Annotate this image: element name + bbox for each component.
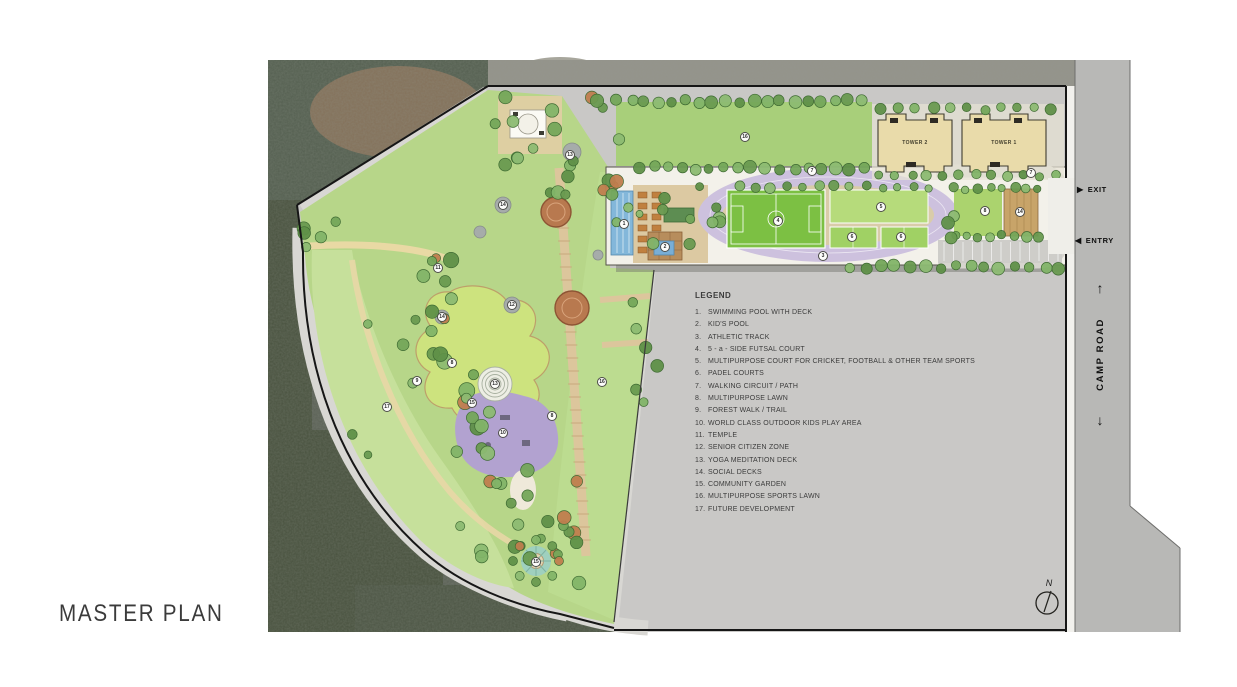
- towers: [872, 104, 1064, 180]
- exit-arrow-icon: ▶: [1077, 186, 1084, 194]
- exit-gate: ▶ EXIT: [1077, 185, 1107, 194]
- legend-item: 16.MULTIPURPOSE SPORTS LAWN: [695, 491, 1025, 503]
- legend: LEGEND 1.SWIMMING POOL WITH DECK2.KID'S …: [695, 291, 1025, 516]
- plan-marker-10: 10: [498, 428, 508, 438]
- legend-item: 6.PADEL COURTS: [695, 368, 1025, 380]
- entry-label: ENTRY: [1086, 236, 1114, 245]
- plan-marker-7: 7: [1026, 168, 1036, 178]
- plan-marker-8: 8: [547, 411, 557, 421]
- legend-item: 2.KID'S POOL: [695, 319, 1025, 331]
- plan-marker-12: 12: [507, 300, 517, 310]
- plan-marker-11: 11: [433, 263, 443, 273]
- plan-marker-17: 17: [382, 402, 392, 412]
- tower-1-label: TOWER 1: [991, 140, 1017, 146]
- camp-road-strip: [1048, 60, 1180, 632]
- legend-item: 8.MULTIPURPOSE LAWN: [695, 393, 1025, 405]
- legend-item: 13.YOGA MEDITATION DECK: [695, 455, 1025, 467]
- plan-marker-6: 6: [896, 232, 906, 242]
- legend-item: 9.FOREST WALK / TRAIL: [695, 405, 1025, 417]
- legend-item: 5.MULTIPURPOSE COURT FOR CRICKET, FOOTBA…: [695, 356, 1025, 368]
- legend-item: 11.TEMPLE: [695, 430, 1025, 442]
- exit-label: EXIT: [1088, 185, 1107, 194]
- arrow-up-icon: ↑: [1097, 281, 1104, 295]
- plan-marker-16: 16: [597, 377, 607, 387]
- entry-gate: ◀ ENTRY: [1075, 236, 1114, 245]
- plan-marker-4: 4: [773, 216, 783, 226]
- plan-marker-8: 8: [447, 358, 457, 368]
- legend-item: 15.COMMUNITY GARDEN: [695, 479, 1025, 491]
- page-title: MASTER PLAN: [59, 600, 224, 628]
- plan-marker-15: 15: [467, 398, 477, 408]
- plan-marker-2: 2: [660, 242, 670, 252]
- arrow-down-icon: ↓: [1097, 413, 1104, 427]
- plan-marker-15: 15: [531, 557, 541, 567]
- legend-item: 12.SENIOR CITIZEN ZONE: [695, 442, 1025, 454]
- road-name: CAMP ROAD: [1095, 318, 1106, 391]
- plan-marker-5: 5: [876, 202, 886, 212]
- plan-marker-6: 6: [847, 232, 857, 242]
- plan-marker-9: 9: [412, 376, 422, 386]
- plan-marker-3: 3: [818, 251, 828, 261]
- plan-marker-7: 7: [807, 166, 817, 176]
- legend-item: 10.WORLD CLASS OUTDOOR KIDS PLAY AREA: [695, 418, 1025, 430]
- plan-marker-8: 8: [980, 206, 990, 216]
- north-label: N: [1046, 578, 1053, 588]
- plan-marker-13: 13: [565, 150, 575, 160]
- tower-2-label: TOWER 2: [902, 140, 928, 146]
- legend-list: 1.SWIMMING POOL WITH DECK2.KID'S POOL3.A…: [695, 307, 1025, 516]
- legend-item: 4.5 - a - SIDE FUTSAL COURT: [695, 344, 1025, 356]
- plan-marker-14: 14: [498, 200, 508, 210]
- legend-item: 17.FUTURE DEVELOPMENT: [695, 504, 1025, 516]
- legend-title: LEGEND: [695, 291, 1025, 300]
- plan-marker-1: 1: [619, 219, 629, 229]
- entry-arrow-icon: ◀: [1075, 237, 1082, 245]
- legend-item: 7.WALKING CIRCUIT / PATH: [695, 381, 1025, 393]
- legend-item: 3.ATHLETIC TRACK: [695, 332, 1025, 344]
- plan-marker-14: 14: [1015, 207, 1025, 217]
- plan-marker-13: 13: [490, 379, 500, 389]
- master-plan-canvas: 123456677888910111213131414141515161617 …: [0, 0, 1237, 687]
- plan-marker-14: 14: [437, 312, 447, 322]
- legend-item: 14.SOCIAL DECKS: [695, 467, 1025, 479]
- camp-road-label: ↑ CAMP ROAD ↓: [1086, 281, 1114, 427]
- legend-item: 1.SWIMMING POOL WITH DECK: [695, 307, 1025, 319]
- plan-marker-16: 16: [740, 132, 750, 142]
